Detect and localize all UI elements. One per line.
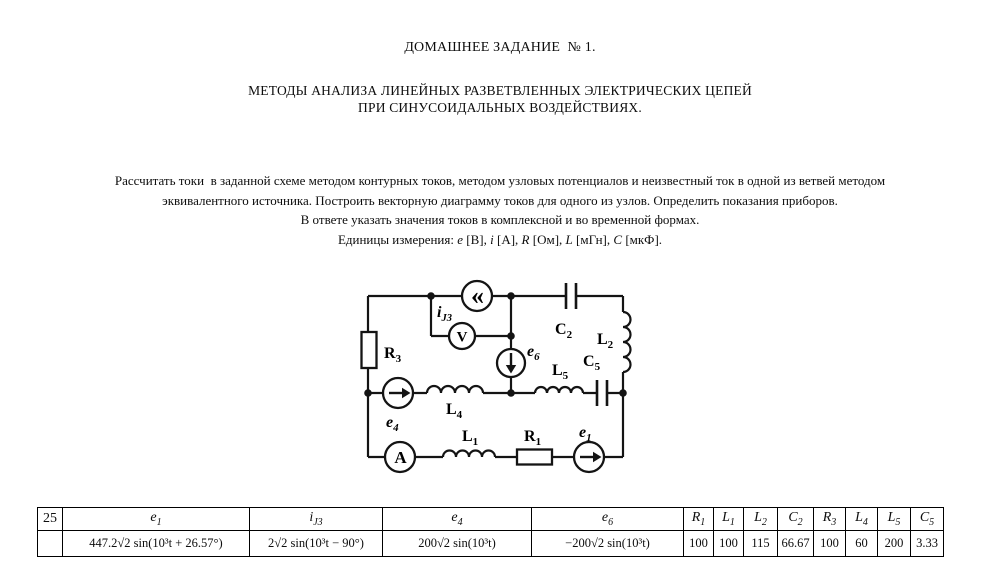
col-header-r1: R1 [684,508,714,531]
subtitle-line-2: ПРИ СИНУСОИДАЛЬНЫХ ВОЗДЕЙСТВИЯХ. [0,99,1000,116]
value-r3: 100 [814,531,846,557]
label-c2: C2 [555,321,573,341]
col-header-c5: C5 [911,508,944,531]
value-l5: 200 [878,531,911,557]
label-e4: e4 [386,414,399,434]
label-ij3: iJ3 [437,304,452,324]
value-ij3: 2√2 sin(10³t − 90°) [250,531,383,557]
col-header-e1: e1 [63,508,250,531]
page-subtitle: МЕТОДЫ АНАЛИЗА ЛИНЕЙНЫХ РАЗВЕТВЛЕННЫХ ЭЛ… [0,82,1000,116]
value-l2: 115 [744,531,778,557]
label-e1: e1 [579,424,592,444]
document-page: { "page": { "title1": "ДОМАШНЕЕ ЗАДАНИЕ … [0,0,1000,568]
inductor-l4-coil [427,386,483,393]
col-header-e6: e6 [532,508,684,531]
value-e6: −200√2 sin(10³t) [532,531,684,557]
value-e4: 200√2 sin(10³t) [383,531,532,557]
label-l4: L4 [446,401,463,421]
table-values-row: 447.2√2 sin(10³t + 26.57°) 2√2 sin(10³t … [38,531,944,557]
voltmeter-letter: V [457,330,468,346]
value-c5: 3.33 [911,531,944,557]
resistor-r1-box [517,450,552,465]
value-l4: 60 [846,531,878,557]
label-r3: R3 [384,345,402,365]
col-header-e4: e4 [383,508,532,531]
table-header-row: 25 e1 iJ3 e4 e6 R1 L1 L2 C2 R3 L4 L5 C5 [38,508,944,531]
circuit-diagram: « V A R3 iJ3 C2 L2 C5 L5 e6 e4 L4 L1 R1 … [350,272,670,484]
label-l1: L1 [462,428,478,448]
task-line-3: В ответе указать значения токов в компле… [0,210,1000,230]
value-r1: 100 [684,531,714,557]
label-e6: e6 [527,343,540,363]
inductor-l5-coil [535,387,583,393]
label-r1: R1 [524,428,541,448]
capacitor-c2-plates [566,283,576,309]
capacitor-c5-plates [597,380,607,406]
value-l1: 100 [714,531,744,557]
col-header-r3: R3 [814,508,846,531]
subtitle-line-1: МЕТОДЫ АНАЛИЗА ЛИНЕЙНЫХ РАЗВЕТВЛЕННЫХ ЭЛ… [0,82,1000,99]
col-header-l4: L4 [846,508,878,531]
col-header-ij3: iJ3 [250,508,383,531]
inductor-l2-coil [623,312,631,372]
col-header-c2: C2 [778,508,814,531]
col-header-l2: L2 [744,508,778,531]
parameters-table: 25 e1 iJ3 e4 e6 R1 L1 L2 C2 R3 L4 L5 C5 … [37,507,944,557]
col-header-l1: L1 [714,508,744,531]
current-source-glyph: « [471,281,484,310]
task-paragraph: Рассчитать токи в заданной схеме методом… [0,171,1000,249]
variant-number: 25 [38,508,63,531]
page-title: ДОМАШНЕЕ ЗАДАНИЕ № 1. [0,40,1000,56]
label-l5: L5 [552,362,569,382]
ammeter-letter: A [394,448,407,467]
resistor-r3-box [362,332,377,368]
label-l2: L2 [597,331,614,351]
task-line-2: эквивалентного источника. Построить вект… [0,191,1000,211]
variant-empty-cell [38,531,63,557]
col-header-l5: L5 [878,508,911,531]
value-c2: 66.67 [778,531,814,557]
label-c5: C5 [583,353,601,373]
task-line-1: Рассчитать токи в заданной схеме методом… [0,171,1000,191]
units-line: Единицы измерения: e [В], i [А], R [Ом],… [0,230,1000,250]
inductor-l1-coil [443,451,495,458]
value-e1: 447.2√2 sin(10³t + 26.57°) [63,531,250,557]
